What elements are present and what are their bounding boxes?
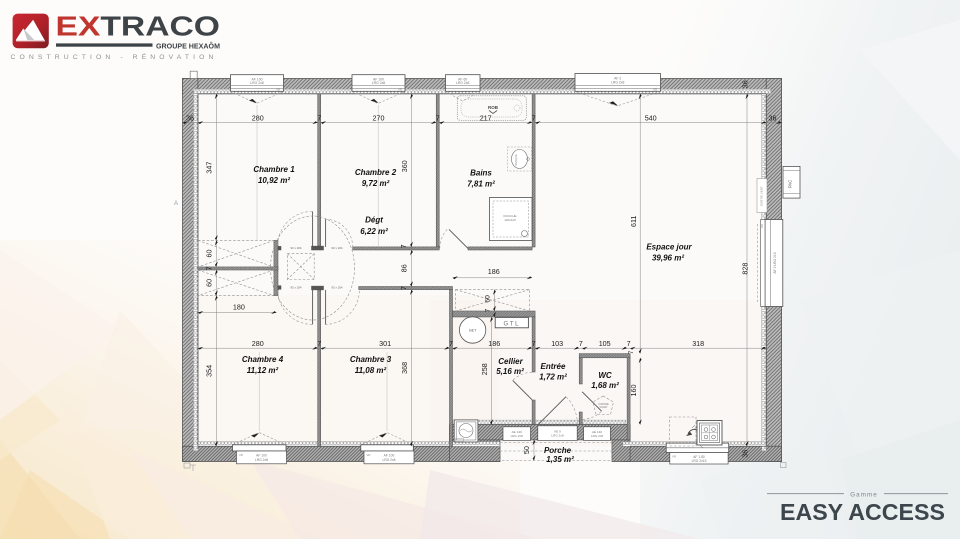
svg-text:611: 611 [629,216,638,227]
svg-text:5,16 m²: 5,16 m² [496,367,524,376]
svg-text:AF 2 LRG 215: AF 2 LRG 215 [773,252,777,273]
svg-text:LRG 2x8: LRG 2x8 [456,81,469,85]
svg-text:318: 318 [692,339,704,348]
svg-text:9,72 m²: 9,72 m² [362,179,390,188]
svg-text:VR: VR [760,224,764,228]
svg-text:186: 186 [488,339,500,348]
svg-text:7: 7 [628,350,635,354]
svg-text:258: 258 [480,363,489,375]
svg-text:93 x 204: 93 x 204 [290,246,301,250]
svg-text:10,92 m²: 10,92 m² [258,176,290,185]
svg-text:7: 7 [205,267,214,271]
svg-text:LRG 2x15: LRG 2x15 [692,459,707,463]
svg-text:105: 105 [599,339,611,348]
svg-text:Espace jour: Espace jour [646,243,692,252]
svg-text:7: 7 [317,339,321,348]
svg-text:Gamme: Gamme [850,491,878,498]
svg-text:93 x 204: 93 x 204 [331,285,342,289]
svg-text:LRG 2x8: LRG 2x8 [611,81,624,85]
svg-text:Porche: Porche [544,446,572,455]
svg-text:VASQUE: VASQUE [514,154,518,166]
svg-text:354: 354 [205,365,214,377]
svg-text:Chambre 4: Chambre 4 [242,355,284,364]
svg-text:7: 7 [485,308,492,312]
svg-text:36: 36 [186,113,194,122]
svg-text:Chambre 1: Chambre 1 [253,165,295,174]
svg-text:LRG 2x8: LRG 2x8 [382,458,395,462]
svg-text:7: 7 [317,113,321,122]
svg-text:VOLET: VOLET [599,406,608,409]
svg-text:PAC: PAC [788,180,793,188]
svg-text:60: 60 [205,279,214,287]
svg-text:1,72 m²: 1,72 m² [539,373,567,382]
svg-text:Dégt: Dégt [365,216,383,225]
svg-text:217: 217 [480,113,492,122]
svg-text:7: 7 [579,339,583,348]
svg-text:36: 36 [769,113,777,122]
svg-text:VR: VR [653,88,657,92]
svg-text:11,12 m²: 11,12 m² [247,366,279,375]
svg-text:SORTIE VENT.: SORTIE VENT. [760,186,764,207]
svg-text:301: 301 [379,339,391,348]
svg-text:Entrée: Entrée [541,362,566,371]
svg-text:CONSTRUCTION - RÉNOVATION: CONSTRUCTION - RÉNOVATION [11,52,218,61]
svg-text:GET: GET [469,329,477,333]
svg-text:186: 186 [488,267,500,276]
svg-text:93 x 204: 93 x 204 [331,246,342,250]
svg-text:60: 60 [205,250,214,258]
svg-text:Bains: Bains [470,169,492,178]
svg-text:60: 60 [485,295,492,303]
svg-text:Chambre 3: Chambre 3 [350,355,392,364]
svg-text:7: 7 [399,244,408,248]
svg-text:828: 828 [741,263,750,275]
svg-text:GROUPE HEXAÔM: GROUPE HEXAÔM [156,42,220,51]
svg-text:LRG 2x8: LRG 2x8 [250,81,263,85]
svg-text:39,96 m²: 39,96 m² [652,254,684,263]
svg-text:7: 7 [399,286,408,290]
svg-text:7: 7 [449,339,453,348]
svg-text:11,08 m²: 11,08 m² [355,366,387,375]
svg-text:36: 36 [740,450,749,458]
svg-text:6,22 m²: 6,22 m² [360,227,388,236]
svg-text:VR: VR [398,88,402,92]
svg-text:VR: VR [672,455,676,459]
svg-text:160: 160 [629,385,638,397]
svg-text:A: A [174,201,178,207]
svg-text:103: 103 [551,339,563,348]
svg-text:36: 36 [740,80,749,88]
svg-text:LRG 2x8: LRG 2x8 [551,433,563,437]
svg-text:Cellier: Cellier [498,357,523,366]
svg-text:93 x 204: 93 x 204 [290,285,301,289]
svg-text:280: 280 [252,113,264,122]
svg-text:LRG 2x8: LRG 2x8 [511,434,523,438]
svg-text:VR: VR [276,88,280,92]
svg-text:270: 270 [373,113,385,122]
svg-text:7: 7 [436,113,440,122]
svg-text:368: 368 [400,362,409,374]
svg-text:ROB: ROB [488,105,499,110]
svg-text:7: 7 [532,113,536,122]
svg-text:7: 7 [532,339,536,348]
svg-text:1,68 m²: 1,68 m² [591,381,619,390]
svg-text:7: 7 [627,339,631,348]
svg-text:50: 50 [522,446,531,454]
svg-text:180: 180 [233,303,245,312]
svg-text:86: 86 [399,264,408,272]
svg-text:GTL: GTL [504,321,520,327]
svg-text:540: 540 [645,113,657,122]
svg-text:WC: WC [598,371,612,380]
svg-text:VR: VR [367,453,371,457]
svg-text:280: 280 [252,339,264,348]
svg-text:LRG 2x8: LRG 2x8 [372,81,385,85]
svg-text:EXTRACO: EXTRACO [56,10,221,41]
svg-text:120x120: 120x120 [504,218,516,222]
svg-text:360: 360 [400,160,409,172]
svg-text:VR: VR [239,453,243,457]
svg-text:Chambre 2: Chambre 2 [355,168,397,177]
svg-text:1,35 m²: 1,35 m² [546,455,574,464]
svg-text:7,81 m²: 7,81 m² [467,180,495,189]
svg-text:EASY ACCESS: EASY ACCESS [780,499,945,525]
svg-text:LRG 2x8: LRG 2x8 [255,458,268,462]
svg-text:LRG 2x8: LRG 2x8 [591,434,603,438]
svg-text:347: 347 [205,162,214,174]
